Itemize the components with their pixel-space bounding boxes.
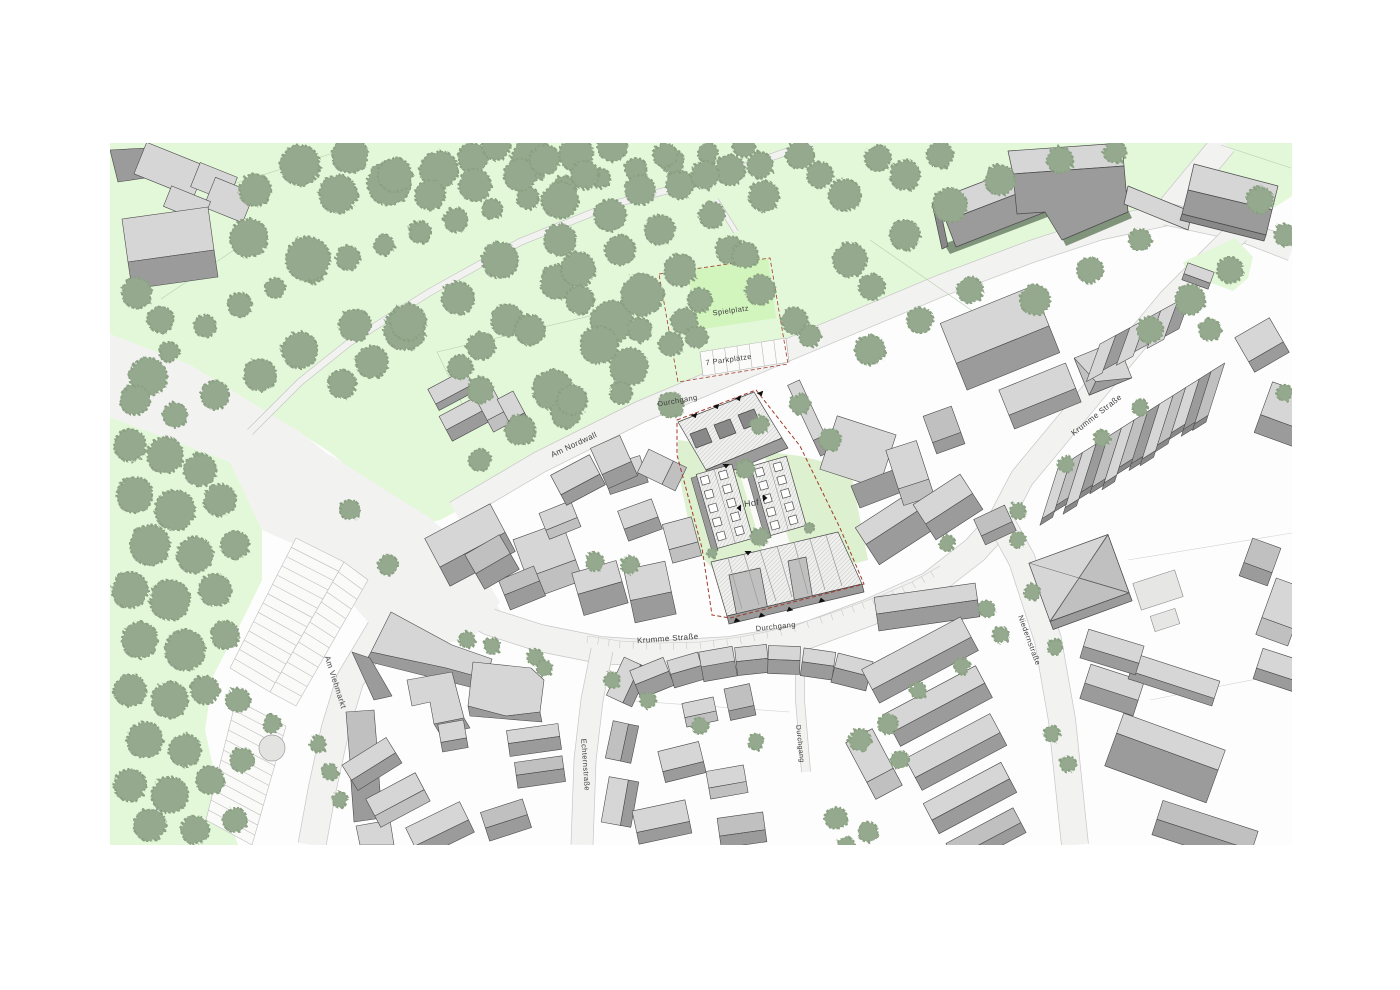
svg-text:Hof: Hof: [743, 497, 760, 509]
